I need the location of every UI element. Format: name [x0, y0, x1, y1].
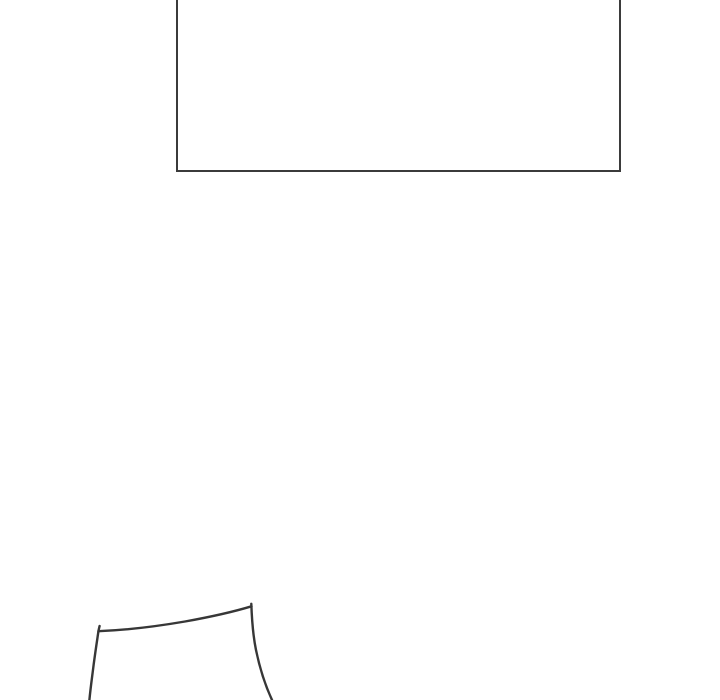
artwork-canvas	[0, 0, 720, 700]
sketch-top-edge-line	[98, 606, 251, 631]
panel-border	[177, 0, 620, 171]
sketch-right-side-line	[251, 604, 272, 700]
comic-page	[0, 0, 720, 700]
sketch-left-side-line	[89, 626, 99, 700]
